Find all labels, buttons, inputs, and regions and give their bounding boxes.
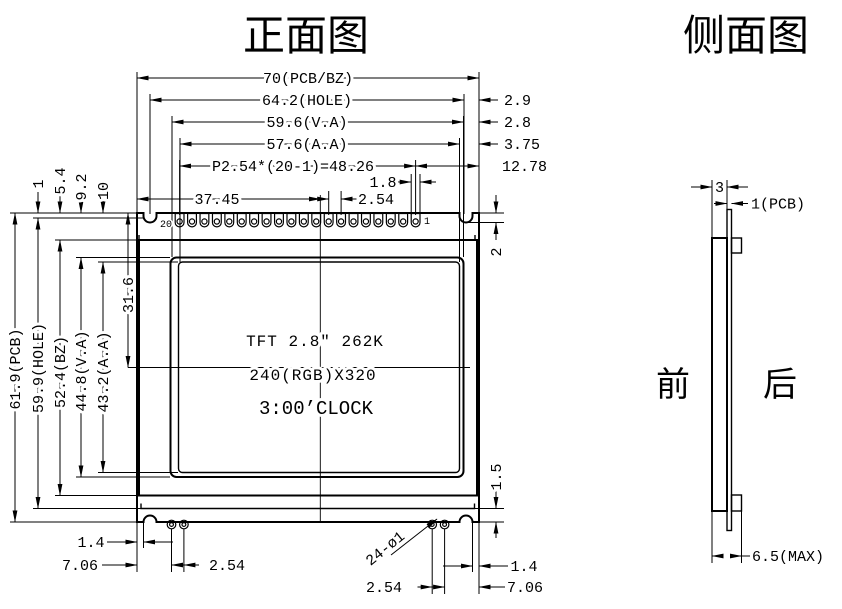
hole-callout: 24-ø1 [363,529,409,571]
side-front-panel [712,238,727,511]
dim-pcb-width: 70(PCB/BZ) [263,71,353,88]
dim-hole-width: 64.2(HOLE) [262,93,352,110]
dim-va-height: 44.8(V.A) [74,330,91,411]
side-front-label: 前 [656,366,690,404]
dim-va-edge: 2.8 [504,115,531,132]
dim-hole-height: 59.9(HOLE) [31,323,48,413]
dim-notch-depth: 2 [489,247,506,256]
dim-bottom-left-pitch: 2.54 [209,558,245,575]
dim-bottom-right-notch: 1.4 [510,559,537,576]
dim-bottom-left-hole: 7.06 [62,558,98,575]
front-view-title: 正面图 [243,12,369,59]
pin20-label: 20 [160,220,172,231]
dim-pin1-edge: 12.78 [502,159,547,176]
dim-bz-height: 52.4(BZ) [53,336,70,408]
dim-bz-offset: 5.4 [53,167,70,194]
side-view-title: 侧面图 [683,12,809,59]
dim-va-width: 59.6(V.A) [266,115,347,132]
side-view: 侧面图 3 1(PCB) 6.5(MAX) 前 后 [656,12,824,566]
pin1-label: 1 [424,217,430,228]
side-pcb [727,210,732,531]
dim-pcb-thickness: 1(PCB) [751,197,805,214]
dim-bottom-right-pitch: 2.54 [366,580,402,597]
front-view: 正面图 70(PCB/BZ) 64.2(HOLE) 59.6(V.A) 57.6… [8,12,547,597]
dim-pin-pitch: 2.54 [358,192,394,209]
display-spec-line2: 240(RGB)X320 [249,367,376,385]
side-top-tab [732,238,742,253]
dim-aa-width: 57.6(A.A) [266,137,347,154]
display-spec-line1: TFT 2.8″ 262K [246,333,384,351]
dim-va-offset: 9.2 [74,173,91,200]
dim-max-thickness: 6.5(MAX) [752,549,824,566]
pin-row [175,214,420,227]
drawing-sheet: 正面图 70(PCB/BZ) 64.2(HOLE) 59.6(V.A) 57.6… [0,0,842,609]
center-lines [128,195,470,523]
dim-va-center-x: 37.45 [194,192,239,209]
back-step-edge [141,504,475,509]
engineering-drawing: 正面图 70(PCB/BZ) 64.2(HOLE) 59.6(V.A) 57.6… [0,0,842,609]
dim-bottom-right-hole: 7.06 [507,580,543,597]
dim-bottom-left-notch: 1.4 [77,535,104,552]
dim-pin-span: P2.54*(20-1)=48.26 [212,159,374,176]
dim-aa-offset: 10 [96,182,113,200]
dim-hole-edge: 2.9 [504,93,531,110]
dim-aa-height: 43.2(A.A) [96,331,113,412]
dim-step-edge: 1.5 [489,463,506,490]
dim-aa-edge: 3.75 [504,137,540,154]
dim-pad-width: 1.8 [369,175,396,192]
display-spec-line3: 3:00’CLOCK [259,398,374,420]
dim-va-center-y: 31.6 [121,277,138,313]
side-bottom-tab [732,495,742,511]
dim-total-thickness: 3 [715,180,724,197]
dim-pad-offset: 1 [31,179,48,188]
dim-pcb-height: 61.9(PCB) [8,328,25,409]
side-back-label: 后 [763,366,797,404]
